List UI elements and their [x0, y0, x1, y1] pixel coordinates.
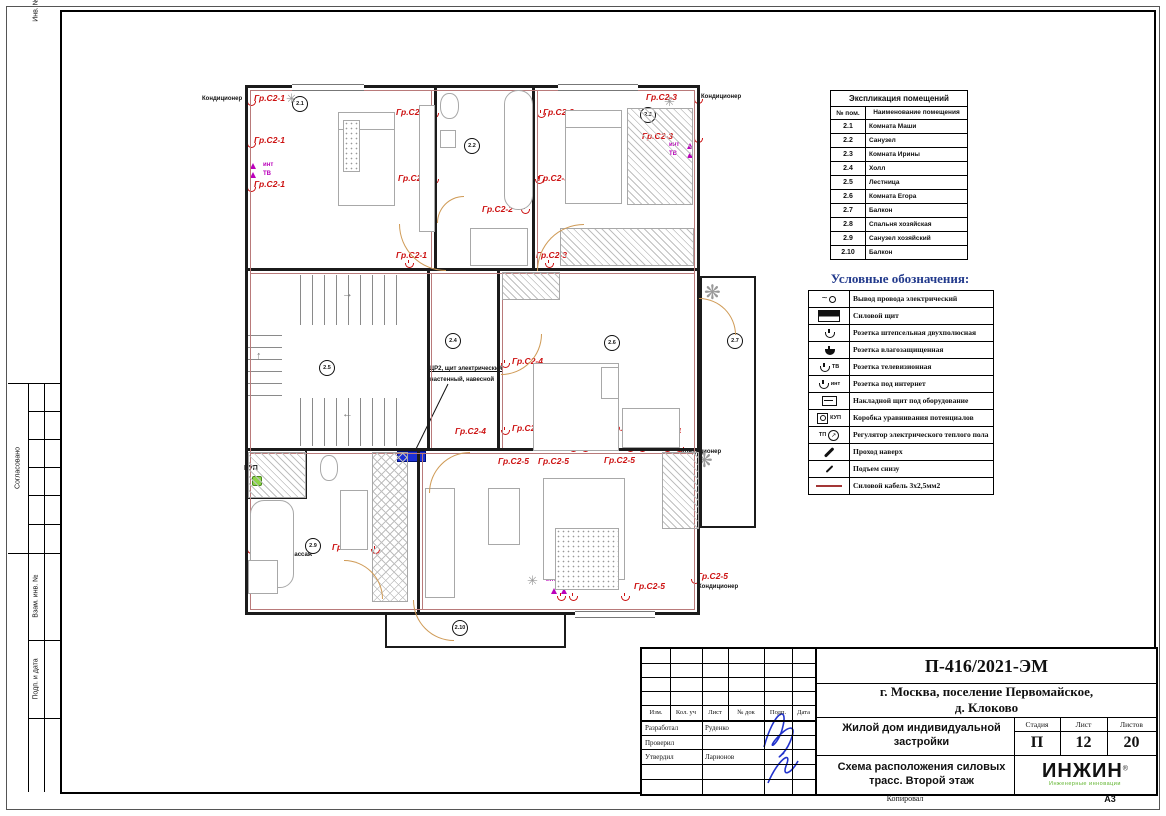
furniture [440, 93, 459, 119]
power-cable-run [694, 90, 695, 610]
pass-up-icon [824, 447, 834, 457]
legend-label: Подъем снизу [850, 461, 993, 477]
legend-icon: КУП [809, 410, 850, 426]
legend-label: Розетка телевизионная [850, 359, 993, 375]
legend-icon: инт [809, 376, 850, 392]
room-number-circle: 2.2 [464, 138, 480, 154]
lowcurrent-label: ТВ [263, 171, 271, 177]
tb-header-col: Кол. уч [670, 706, 702, 720]
legend-icon [809, 393, 850, 409]
logo-name: ИНЖИН [1042, 760, 1123, 782]
potential-box-icon [817, 413, 828, 424]
ac-unit-icon: ✳ [527, 573, 538, 589]
legend-row: КУПКоробка уравнивания потенциалов [809, 410, 993, 427]
margin-line [28, 495, 60, 496]
explication-rows: 2.1Комната Маши2.2Санузел2.3Комната Ирин… [831, 120, 967, 259]
socket-symbol [620, 593, 629, 600]
table-row: 2.3Комната Ирины [831, 148, 967, 162]
legend: ~Вывод провода электрическийСиловой щитР… [808, 290, 994, 495]
room-number-cell: 2.7 [831, 204, 866, 217]
window [575, 611, 655, 618]
plan-note: ЩР2, щит электрический [428, 366, 502, 372]
legend-icon [809, 342, 850, 358]
table-row: 2.6Комната Егора [831, 190, 967, 204]
furniture [248, 452, 306, 498]
furniture [601, 367, 619, 399]
power-panel-icon [818, 310, 840, 322]
legend-icon: ТВ [809, 359, 850, 375]
sheet-number: 12 [1060, 731, 1107, 755]
legend-row: Силовой щит [809, 308, 993, 325]
circuit-label: Гр.С2-5 [697, 571, 728, 581]
furniture [248, 560, 278, 594]
tb-role: Разработал [645, 722, 701, 735]
waterproof-socket-icon [824, 346, 835, 355]
power-cable-run [537, 90, 538, 268]
tb-header-col: Подп. [764, 706, 792, 720]
project-object: Жилой дом индивидуальной застройки [817, 717, 1026, 755]
col-room-number: № пом. [831, 107, 866, 119]
registered-mark-icon: ® [1123, 766, 1128, 773]
legend-icon [809, 325, 850, 341]
plan-note: Кондиционер [698, 584, 738, 590]
stair-arrow-icon: ← [342, 408, 353, 420]
socket-type-label: инт [831, 381, 840, 387]
wire-end-icon [829, 296, 836, 303]
furniture [340, 490, 368, 550]
tb-role-name: Ларионов [705, 751, 763, 764]
furniture [504, 90, 533, 210]
legend-row: ТВРозетка телевизионная [809, 359, 993, 376]
circuit-label: Гр.С2-1 [254, 135, 285, 145]
circuit-label: Гр.С2-1 [254, 93, 285, 103]
power-cable-run [250, 453, 695, 454]
tp-label: ТП [819, 432, 826, 438]
legend-icon [809, 461, 850, 477]
legend-row: Розетка штепсельная двухполюсная [809, 325, 993, 342]
socket-symbol [568, 593, 577, 600]
location-line1: г. Москва, поселение Первомайское, [880, 684, 1093, 700]
ac-unit-icon: ✳ [286, 91, 297, 107]
legend-row: Подъем снизу [809, 461, 993, 478]
furniture [419, 105, 435, 232]
tb-header-col: Изм. [642, 706, 670, 720]
legend-label: Регулятор электрического теплого пола [850, 427, 993, 443]
tb-role: Проверил [645, 737, 701, 750]
legend-row: Накладной щит под оборудование [809, 393, 993, 410]
room-name-cell: Балкон [866, 246, 967, 259]
balcony-outline [385, 612, 566, 648]
table-row: 2.9Санузел хозяйский [831, 232, 967, 246]
power-cable-icon [816, 485, 842, 487]
power-cable-run [422, 453, 423, 609]
project-location: г. Москва, поселение Первомайское, д. Кл… [817, 683, 1156, 717]
table-row: 2.2Санузел [831, 134, 967, 148]
legend-icon: ~ [809, 291, 850, 307]
room-name-cell: Санузел хозяйский [866, 232, 967, 245]
legend-icon [809, 308, 850, 324]
legend-label: Силовой кабель 3х2,5мм2 [850, 478, 993, 494]
socket-symbol [534, 176, 543, 183]
room-number-cell: 2.9 [831, 232, 866, 245]
company-logo: ИНЖИН® Инженерные инновации [1014, 755, 1156, 794]
power-cable-run [431, 273, 432, 448]
margin-line [28, 524, 60, 525]
floor-regulator-icon: ↗ [828, 430, 839, 441]
wall [417, 448, 420, 615]
copied-label: Копировал [830, 794, 980, 803]
stair-arrow-icon: ↑ [256, 350, 262, 362]
grid-line [817, 683, 1156, 684]
grid-line [642, 691, 815, 692]
legend-label: Накладной щит под оборудование [850, 393, 993, 409]
legend-row: ~Вывод провода электрический [809, 291, 993, 308]
tb-role: Утвердил [645, 751, 701, 764]
door-arc [429, 452, 470, 493]
tb-header-col: Дата [792, 706, 815, 720]
room-number-cell: 2.4 [831, 162, 866, 175]
room-number-circle: 2.4 [445, 333, 461, 349]
furniture [488, 488, 520, 545]
socket-icon [824, 329, 835, 338]
room-name-cell: Спальня хозяйская [866, 218, 967, 231]
window [558, 84, 638, 91]
legend-rows: ~Вывод провода электрическийСиловой щитР… [809, 291, 993, 494]
window [292, 84, 364, 91]
margin-line [44, 383, 45, 792]
furniture [627, 108, 693, 205]
sheets-total: 20 [1107, 731, 1156, 755]
legend-row: ТП↗Регулятор электрического теплого пола [809, 427, 993, 444]
grid-line [815, 649, 817, 794]
legend-row: Розетка влагозащищенная [809, 342, 993, 359]
grid-line [642, 764, 815, 765]
sheet-title: Схема расположения силовых трасс. Второй… [817, 755, 1026, 794]
socket-tv-icon [819, 363, 830, 372]
furniture [502, 272, 560, 300]
power-cable-run [250, 273, 695, 274]
stair-arrow-icon: → [342, 288, 353, 300]
wall [245, 85, 248, 615]
room-number-cell: 2.1 [831, 120, 866, 133]
socket-symbol [404, 260, 413, 267]
wall [497, 268, 500, 451]
legend-icon [809, 478, 850, 494]
legend-label: Силовой щит [850, 308, 993, 324]
stage-label: Стадия [1014, 717, 1060, 731]
tb-role-name: Руденко [705, 722, 763, 735]
surface-panel-icon [822, 396, 837, 406]
margin-line [28, 439, 60, 440]
legend-label: Розетка под интернет [850, 376, 993, 392]
plan-note: настенный, навесной [430, 377, 494, 383]
tb-role-name [705, 737, 763, 750]
tb-header-col: № док [728, 706, 764, 720]
grid-line [1107, 717, 1108, 755]
table-row: 2.4Холл [831, 162, 967, 176]
wall [245, 448, 700, 451]
legend-icon [809, 444, 850, 460]
legend-label: Коробка уравнивания потенциалов [850, 410, 993, 426]
socket-type-label: ТВ [832, 364, 839, 370]
furniture [555, 528, 619, 590]
furniture [565, 110, 622, 128]
table-row: 2.5Лестница [831, 176, 967, 190]
grid-line [642, 779, 815, 780]
grid-line [1060, 717, 1061, 755]
legend-label: Проход наверх [850, 444, 993, 460]
room-number-cell: 2.2 [831, 134, 866, 147]
furniture [662, 452, 699, 529]
circuit-label: Гр.С2-4 [455, 426, 486, 436]
room-number-circle: 2.5 [319, 360, 335, 376]
wall [245, 268, 700, 271]
door-arc [537, 224, 584, 271]
lowcurrent-label: инт [263, 162, 273, 168]
table-row: 2.7Балкон [831, 204, 967, 218]
title-block: П-416/2021-ЭМ г. Москва, поселение Перво… [640, 647, 1158, 796]
legend-row: интРозетка под интернет [809, 376, 993, 393]
door-arc [437, 196, 464, 223]
grid-line [817, 755, 1156, 756]
grid-line [1014, 717, 1015, 794]
wire-exit-icon: ~ [822, 296, 828, 302]
room-name-cell: Лестница [866, 176, 967, 189]
room-name-cell: Комната Маши [866, 120, 967, 133]
sheets-label: Листов [1107, 717, 1156, 731]
margin-line [28, 467, 60, 468]
legend-label: Розетка штепсельная двухполюсная [850, 325, 993, 341]
circuit-label: Гр.С2-5 [498, 456, 529, 466]
wall [427, 268, 430, 451]
grid-line [1014, 731, 1156, 732]
margin-line [28, 411, 60, 412]
furniture [425, 488, 455, 598]
stair-flight-upper [300, 275, 405, 325]
margin-line [28, 718, 60, 719]
furniture [440, 130, 456, 148]
grid-line [817, 717, 1156, 718]
legend-row: Проход наверх [809, 444, 993, 461]
rise-from-below-icon [825, 465, 833, 473]
drawing-sheet: Согласовано Взам. инв. № Подп. и дата Ин… [0, 0, 1166, 816]
socket-int-icon [818, 380, 829, 389]
sheet-label: Лист [1060, 717, 1107, 731]
legend-icon: ТП↗ [809, 427, 850, 443]
tb-header-col: Лист [702, 706, 728, 720]
room-number-circle: 2.9 [305, 538, 321, 554]
document-code: П-416/2021-ЭМ [817, 649, 1156, 683]
stair-flight-side [248, 328, 282, 396]
plan-note: Кондиционер [701, 94, 741, 100]
room-number-cell: 2.5 [831, 176, 866, 189]
room-name-cell: Балкон [866, 204, 967, 217]
margin-line [8, 553, 60, 554]
room-number-cell: 2.3 [831, 148, 866, 161]
room-number-circle: 2.6 [604, 335, 620, 351]
furniture [343, 120, 360, 172]
explication-title: Экспликация помещений [831, 91, 967, 107]
format-label: А3 [1080, 794, 1140, 804]
grid-line [642, 663, 815, 664]
margin-line [28, 383, 29, 792]
location-line2: д. Клоково [955, 700, 1018, 716]
room-number-cell: 2.8 [831, 218, 866, 231]
margin-line [8, 383, 60, 384]
room-name-cell: Холл [866, 162, 967, 175]
stair-flight-lower [300, 398, 405, 446]
grid-line [642, 677, 815, 678]
margin-line [28, 640, 60, 641]
room-name-cell: Комната Егора [866, 190, 967, 203]
table-row: 2.1Комната Маши [831, 120, 967, 134]
explication-header: № пом. Наименование помещения [831, 107, 967, 120]
logo-tagline: Инженерные инновации [1049, 782, 1121, 788]
explication-table: Экспликация помещений № пом. Наименовани… [830, 90, 968, 260]
power-cable-run [250, 609, 695, 610]
table-row: 2.8Спальня хозяйская [831, 218, 967, 232]
room-name-cell: Санузел [866, 134, 967, 147]
legend-title: Условные обозначения: [800, 271, 1000, 287]
circuit-label: Гр.С2-5 [634, 581, 665, 591]
room-number-cell: 2.6 [831, 190, 866, 203]
legend-label: Розетка влагозащищенная [850, 342, 993, 358]
room-number-cell: 2.10 [831, 246, 866, 259]
legend-row: Силовой кабель 3х2,5мм2 [809, 478, 993, 494]
furniture [470, 228, 528, 266]
circuit-label: Гр.С2-5 [604, 455, 635, 465]
circuit-label: Гр.С2-5 [538, 456, 569, 466]
table-row: 2.10Балкон [831, 246, 967, 259]
kup-label: КУП [830, 415, 841, 421]
socket-symbol [556, 593, 565, 600]
circuit-label: Гр.С2-1 [254, 179, 285, 189]
room-name-cell: Комната Ирины [866, 148, 967, 161]
furniture [622, 408, 680, 448]
col-room-name: Наименование помещения [866, 107, 967, 119]
plan-note: Кондиционер [202, 96, 242, 102]
stage-value: П [1014, 731, 1060, 755]
legend-label: Вывод провода электрический [850, 291, 993, 307]
furniture [320, 455, 338, 481]
